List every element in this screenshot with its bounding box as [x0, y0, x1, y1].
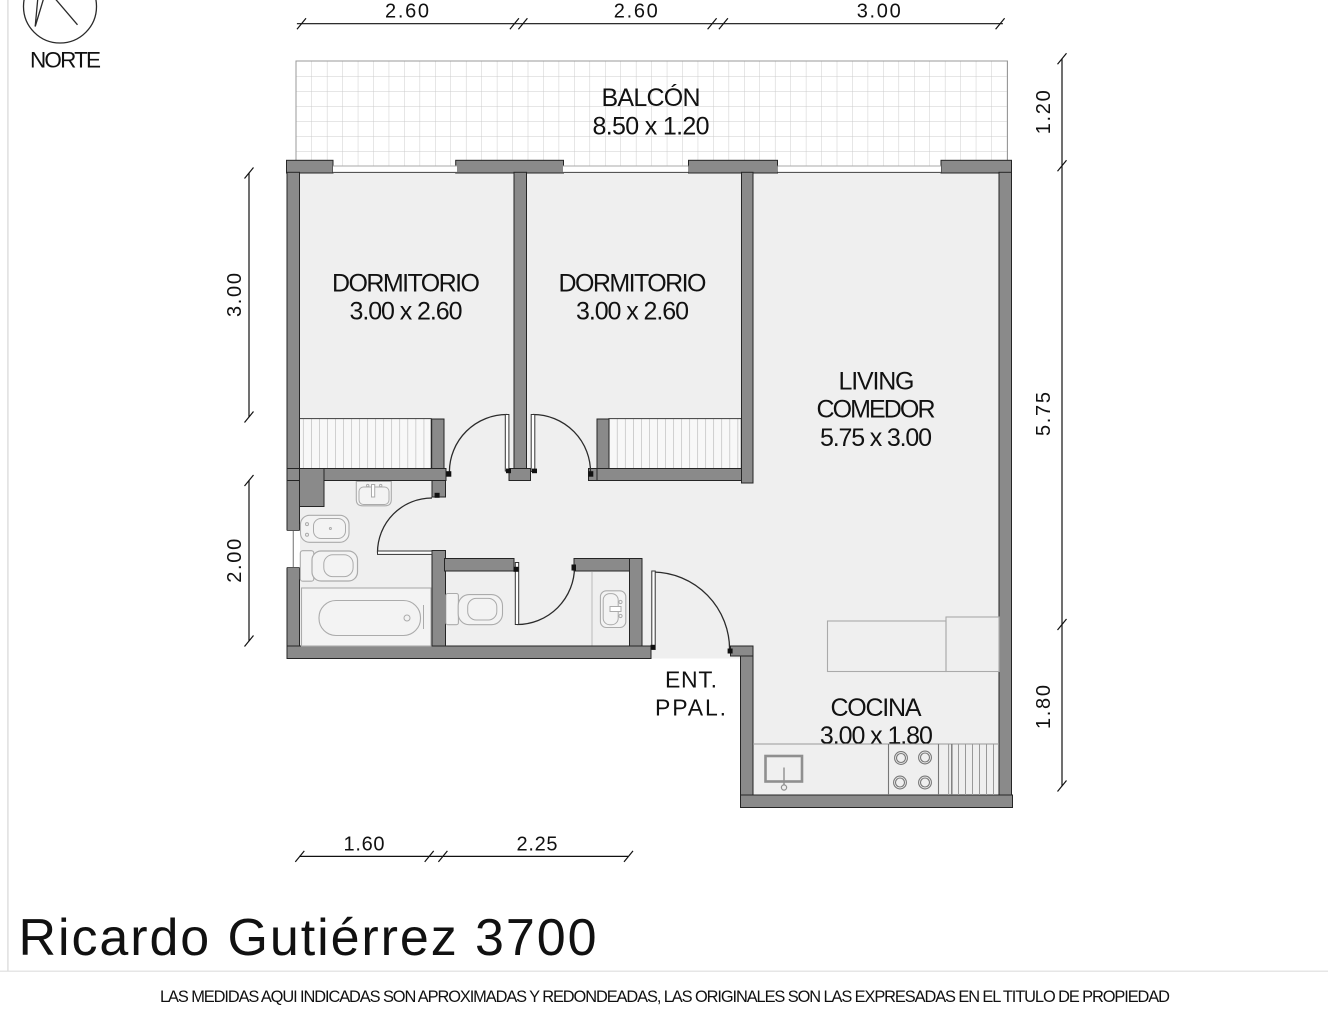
svg-text:PPAL.: PPAL.: [655, 695, 726, 721]
svg-text:NORTE: NORTE: [30, 48, 101, 73]
svg-text:Ricardo Gutiérrez 3700: Ricardo Gutiérrez 3700: [19, 909, 597, 967]
svg-text:3.00 x 2.60: 3.00 x 2.60: [350, 298, 463, 326]
svg-text:3.00 x 1.80: 3.00 x 1.80: [820, 722, 933, 750]
svg-text:COMEDOR: COMEDOR: [817, 396, 936, 424]
svg-text:2.00: 2.00: [224, 539, 246, 583]
svg-text:LIVING: LIVING: [839, 368, 915, 396]
svg-text:5.75: 5.75: [1033, 392, 1055, 436]
svg-text:5.75 x 3.00: 5.75 x 3.00: [820, 424, 932, 452]
svg-text:DORMITORIO: DORMITORIO: [559, 270, 707, 298]
svg-text:2.60: 2.60: [385, 1, 429, 23]
svg-text:COCINA: COCINA: [831, 694, 922, 722]
svg-text:3.00: 3.00: [857, 1, 901, 23]
svg-text:3.00 x 2.60: 3.00 x 2.60: [576, 298, 689, 326]
svg-text:1.60: 1.60: [344, 834, 385, 856]
svg-text:ENT.: ENT.: [665, 667, 717, 693]
svg-text:2.60: 2.60: [614, 1, 658, 23]
svg-text:3.00: 3.00: [224, 273, 246, 317]
svg-text:1.20: 1.20: [1033, 90, 1055, 134]
svg-text:2.25: 2.25: [517, 834, 558, 856]
svg-text:DORMITORIO: DORMITORIO: [332, 270, 480, 298]
svg-text:8.50 x 1.20: 8.50 x 1.20: [593, 113, 710, 141]
svg-text:1.80: 1.80: [1033, 685, 1055, 729]
svg-text:LAS MEDIDAS AQUI INDICADAS SON: LAS MEDIDAS AQUI INDICADAS SON APROXIMAD…: [160, 988, 1170, 1006]
svg-text:BALCÓN: BALCÓN: [602, 83, 701, 112]
